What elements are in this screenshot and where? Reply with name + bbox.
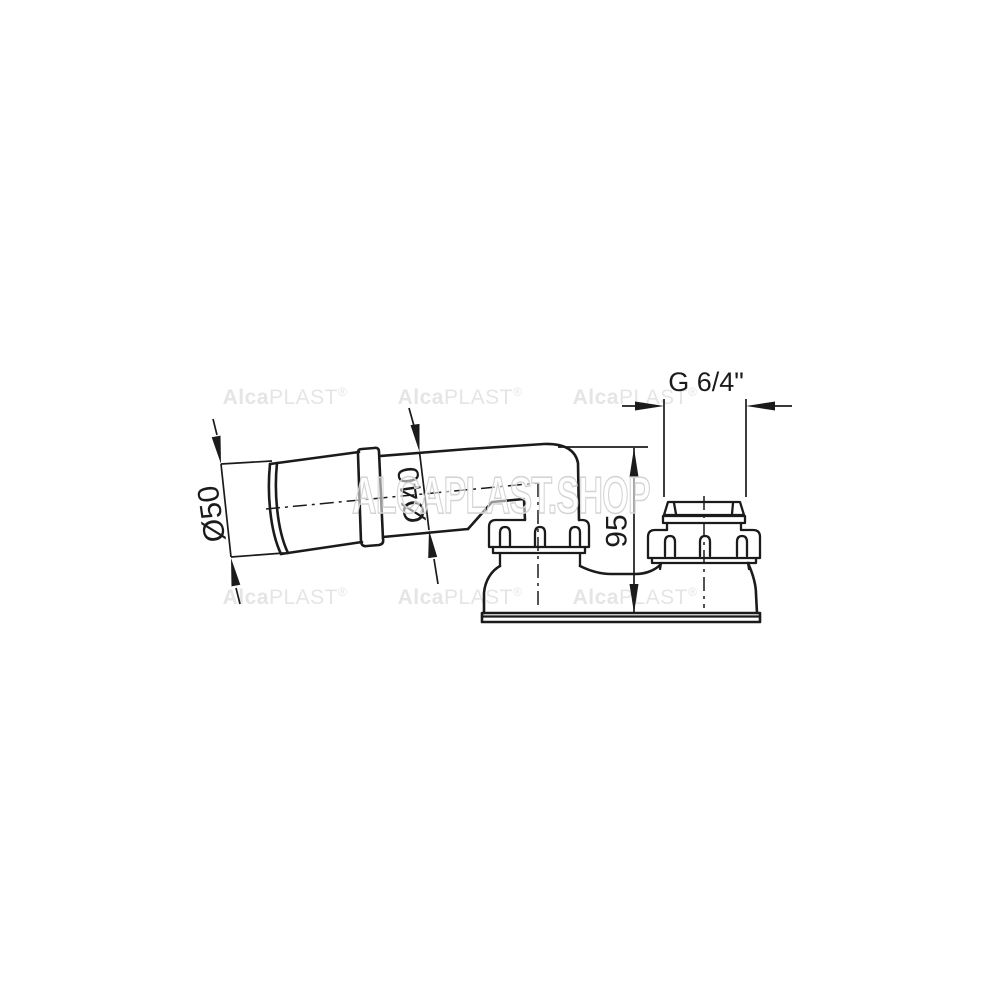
- pipe-bottom-edge: [281, 542, 362, 554]
- dim-tail: [213, 419, 217, 435]
- technical-drawing: AlcaPLAST® AlcaPLAST® AlcaPLAST® AlcaPLA…: [0, 0, 1000, 1000]
- dim-arrow: [746, 402, 775, 411]
- drawing-canvas: AlcaPLAST® AlcaPLAST® AlcaPLAST® AlcaPLA…: [0, 0, 1000, 1000]
- dim-arrow: [231, 558, 240, 586]
- nut-neck: [500, 553, 580, 566]
- pipe-top-edge: [270, 452, 359, 464]
- dim-tail: [409, 408, 414, 426]
- nut-slot: [570, 527, 580, 546]
- dia50-label: Ø50: [192, 483, 233, 544]
- brand-watermark: AlcaPLAST®: [398, 385, 523, 409]
- base-flange: [482, 613, 760, 622]
- brand-watermark: AlcaPLAST®: [398, 585, 523, 609]
- nut-slot: [665, 536, 675, 556]
- dome-right-edge: [748, 563, 757, 613]
- dim-tail: [434, 559, 438, 584]
- brand-watermark: AlcaPLAST®: [223, 585, 348, 609]
- nut-slot: [535, 527, 545, 546]
- dim-arrow: [212, 436, 221, 464]
- union-nut-left: [489, 520, 589, 566]
- tube-top-edge: [380, 449, 468, 456]
- shop-watermark: ALCAPLAST.SHOP: [352, 467, 650, 525]
- dim-arrow: [411, 424, 420, 452]
- dim-arrow: [428, 530, 437, 558]
- tube-bottom-edge: [383, 529, 468, 537]
- nut-slot: [700, 536, 710, 556]
- nut-slot: [500, 527, 510, 546]
- dim-witness-bottom: [231, 553, 284, 557]
- dome-saddle: [580, 565, 660, 574]
- thread-size-label: G 6/4": [668, 367, 744, 397]
- dim-witness-top: [221, 461, 272, 464]
- brand-watermark: AlcaPLAST®: [223, 385, 348, 409]
- nut-slot: [737, 536, 747, 556]
